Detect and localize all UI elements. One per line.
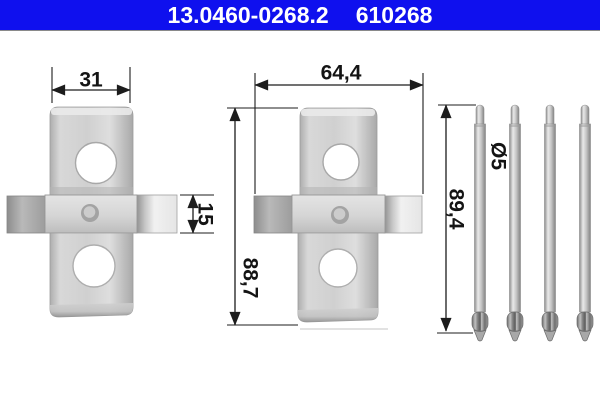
catalog-image: 13.0460-0268.2 610268 — [0, 0, 600, 400]
technical-drawing — [0, 0, 600, 400]
clip-large-left-tab — [254, 196, 292, 233]
clip-small-drawing — [7, 107, 177, 317]
pin-4 — [577, 105, 593, 341]
clip-small-left-tab — [7, 196, 45, 233]
clip-large-right-tab — [384, 196, 422, 233]
dim-label-clip-large-width: 64,4 — [321, 63, 362, 84]
pins-drawing — [472, 105, 593, 341]
clip-small-bottom-hole — [73, 245, 115, 287]
clip-large-bottom-hole — [319, 249, 357, 287]
dim-label-clip-small-width: 31 — [79, 70, 102, 91]
clip-small-right-tab — [136, 195, 177, 233]
pin-1 — [472, 105, 488, 341]
dim-label-clip-large-height: 88,7 — [240, 258, 261, 299]
dim-label-pin-length: 89,4 — [446, 189, 467, 230]
clip-small-top-hole — [76, 143, 117, 184]
dim-label-clip-small-tab-height: 15 — [195, 202, 216, 225]
clip-large-drawing — [254, 108, 422, 322]
pin-2 — [507, 105, 523, 341]
clip-large-top-hole — [323, 144, 359, 180]
dim-label-pin-diameter: Ø5 — [488, 142, 509, 170]
pin-3 — [542, 105, 558, 341]
